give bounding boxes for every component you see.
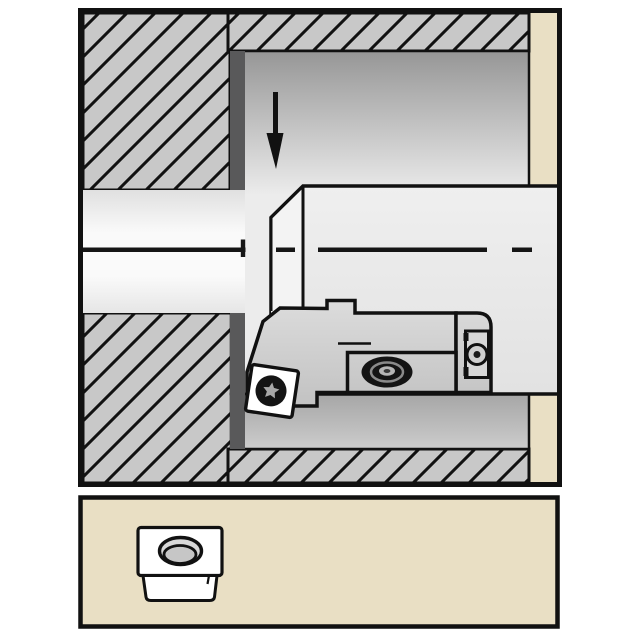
clamp-screw-core [384,369,391,373]
centerline-dot-2 [512,248,532,253]
insert-corner-facet-line [208,576,210,585]
insert-detail-panel [81,498,558,627]
insert-icon [138,528,222,601]
counterbore-face-shadow-upper [230,51,245,190]
upper-right-wall-hatch [228,13,529,51]
centerline-tick [241,240,245,258]
insert-hole-inner [164,546,196,564]
upper-left-wall-hatch [83,13,230,190]
centerline-dash-1 [81,248,246,253]
centerline-dot-1 [276,248,295,253]
main-panel [81,11,561,485]
lower-right-wall-hatch [228,449,529,483]
lower-left-wall-hatch [83,313,232,483]
clamp-screw-oval [362,357,413,388]
end-screw-dot [474,351,481,358]
insert-side-face [143,576,217,601]
centerline-dash-2 [318,248,487,253]
end-cap-screw [464,331,489,378]
arrow-shaft [273,92,278,136]
catalog-illustration [0,0,640,640]
drawing-canvas [0,0,640,640]
counterbore-face-shadow-lower [230,313,245,449]
end-screw-notch-top [464,333,469,341]
end-screw-notch-bottom [464,367,469,376]
indexable-insert [245,364,298,417]
